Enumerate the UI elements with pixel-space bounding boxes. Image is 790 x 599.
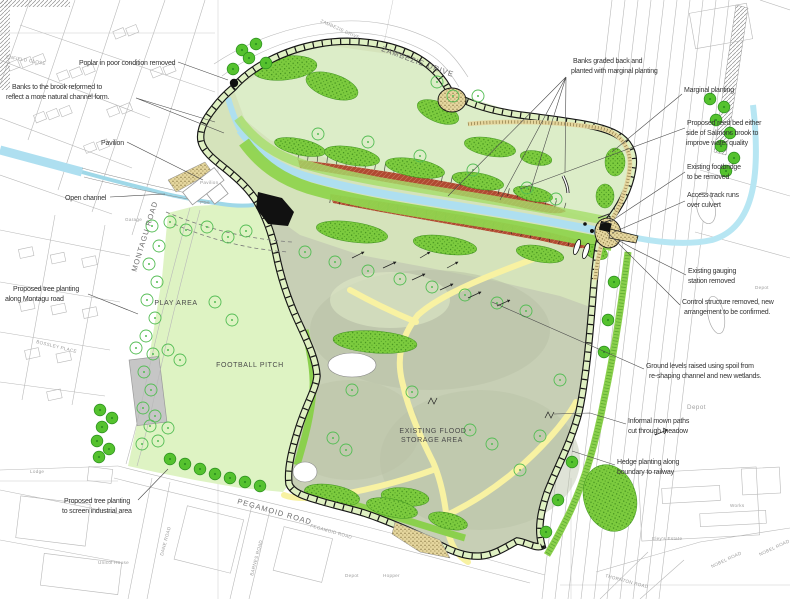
annotation-poplar: Poplar in poor condition removed — [79, 60, 176, 67]
annotation-line: Banks graded back and — [573, 58, 643, 65]
annotation-line: station removed — [688, 278, 735, 285]
masterplan-svg: Poplar in poor condition removed Banks t… — [0, 0, 790, 599]
annotation-line: Proposed tree planting — [13, 286, 79, 293]
lodge-label: Lodge — [30, 469, 44, 474]
works-label: Works — [730, 503, 745, 508]
depot-bottom-label: Depot — [345, 573, 359, 578]
garage-label: Garage — [125, 217, 142, 222]
football-pitch-label: FOOTBALL PITCH — [216, 362, 284, 369]
annotation-line: reflect a more natural channel form. — [6, 94, 110, 101]
annotation-line: Proposed tree planting — [64, 498, 130, 505]
annotation-line: over culvert — [687, 202, 721, 209]
annotation-marginal-planting: Marginal planting — [684, 87, 734, 94]
annotation-pavilion: Pavilion — [101, 140, 124, 147]
poplar-marker — [230, 79, 238, 87]
annotation-line: Informal mown paths — [628, 418, 690, 425]
annotation-line: improve water quality — [686, 140, 749, 147]
annotation-line: Ground levels raised using spoil from — [646, 363, 754, 370]
annotation-line: Proposed reed bed either — [687, 120, 762, 127]
pavilion-map-label: Pavilion — [200, 180, 219, 185]
annotation-open-channel: Open channel — [65, 195, 107, 202]
annotation-line: to be removed — [687, 174, 729, 181]
annotation-line: Hedge planting along — [617, 459, 679, 466]
annotation-line: boundary to railway — [617, 469, 675, 476]
annotation-line: to screen industrial area — [62, 508, 132, 515]
unicol-house-label: Unicol House — [98, 560, 129, 565]
play-area-label: PLAY AREA — [154, 300, 197, 307]
masterplan-drawing: Poplar in poor condition removed Banks t… — [0, 0, 790, 599]
annotation-line: side of Salmons brook to — [686, 130, 759, 137]
eleys-estate-label: Eley's Estate — [652, 536, 682, 541]
depot-far-label: Depot — [755, 285, 769, 290]
annotation-line: Control structure removed, new — [682, 299, 775, 306]
annotation-line: Access track runs — [687, 192, 740, 199]
pcs-label: PCs — [200, 200, 210, 205]
annotation-line: Existing footbridge — [687, 164, 741, 171]
annotation-line: re-shaping channel and new wetlands. — [649, 373, 762, 380]
hopper-label: Hopper — [383, 573, 400, 578]
annotation-line: along Montagu road — [5, 296, 64, 303]
annotation-line: arrangement to be confirmed. — [684, 309, 770, 316]
flood-storage-label-2: STORAGE AREA — [401, 437, 463, 444]
annotation-line: cut through meadow — [628, 428, 689, 435]
annotation-line: planted with marginal planting — [571, 68, 658, 75]
annotation-line: Banks to the brook reformed to — [12, 84, 102, 91]
depot-right-label: Depot — [687, 404, 706, 411]
flood-storage-label-1: EXISTING FLOOD — [399, 428, 466, 435]
annotation-line: Existing gauging — [688, 268, 736, 275]
